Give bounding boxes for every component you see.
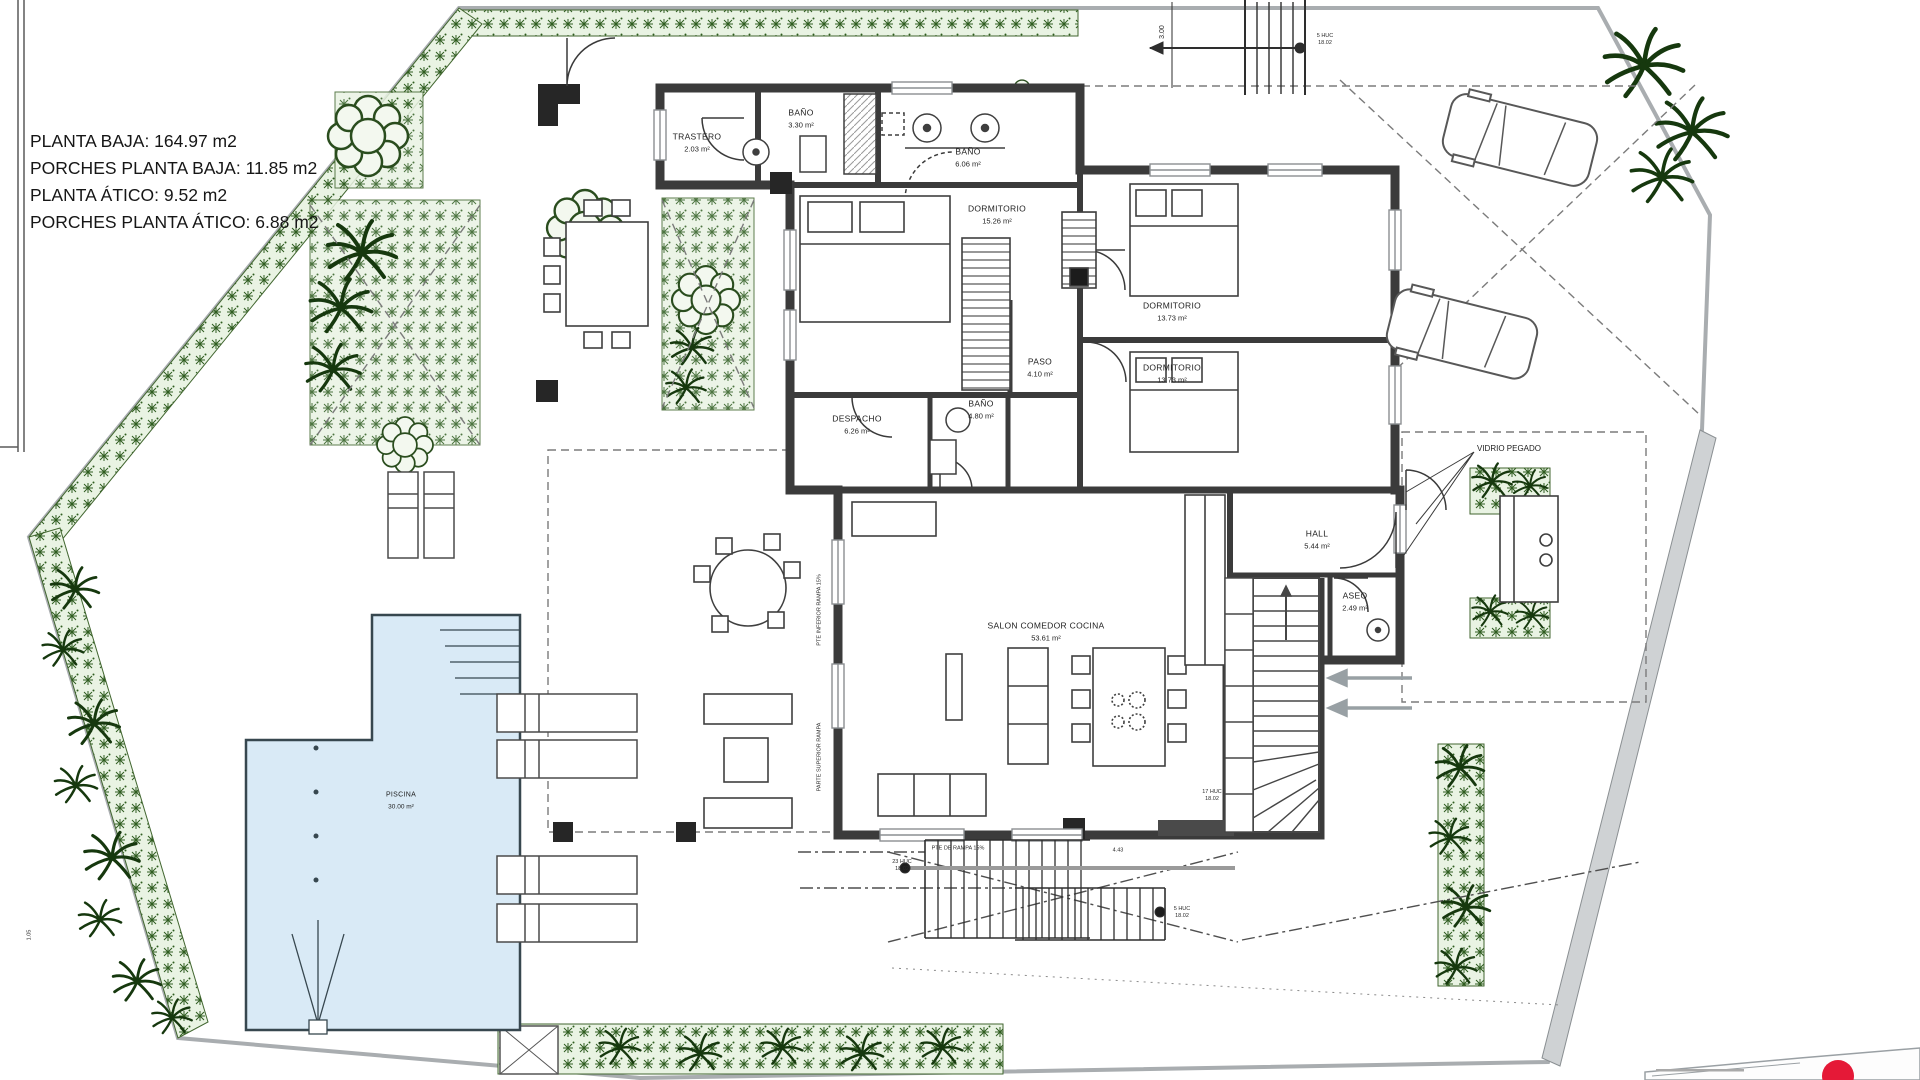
room-label-bano-top: BAÑO3.30 m² (788, 105, 813, 132)
room-label-bano-suite: BAÑO6.06 m² (955, 144, 980, 171)
room-label-bano-pasillo: BAÑO4.80 m² (968, 396, 993, 423)
ramp-note: PTE DE RAMPA 15% (932, 845, 985, 852)
room-label-dormitorio-3: DORMITORIO13.73 m² (1143, 360, 1201, 387)
room-label-piscina: PISCINA30.00 m² (386, 790, 416, 813)
dim-left: 1.05 (26, 930, 33, 941)
stair-bottom-note: 23 HUC18.02 (892, 859, 912, 873)
room-label-dormitorio-principal: DORMITORIO15.26 m² (968, 201, 1026, 228)
dim-vertical: 3.00 (1157, 25, 1169, 39)
sheet-edge (0, 0, 24, 452)
dim-bottom: 4.43 (1113, 847, 1124, 854)
room-label-paso: PASO4.10 m² (1027, 354, 1052, 381)
summary-line: PORCHES PLANTA ÁTICO: 6.88 m2 (30, 209, 319, 236)
room-label-trastero: TRASTERO2.03 m² (673, 129, 722, 156)
title-block (1645, 1048, 1920, 1080)
right-terrace (1500, 496, 1558, 602)
area-summary: PLANTA BAJA: 164.97 m2 PORCHES PLANTA BA… (30, 128, 319, 236)
vidrio-pegado-label: VIDRIO PEGADO (1477, 444, 1541, 453)
summary-line: PLANTA BAJA: 164.97 m2 (30, 128, 319, 155)
stair-int-note: 17 HUC18.02 (1202, 789, 1222, 803)
stair-top-note: 5 HUC18.02 (1317, 33, 1334, 47)
summary-line: PORCHES PLANTA BAJA: 11.85 m2 (30, 155, 319, 182)
room-label-aseo: ASEO2.49 m² (1342, 588, 1367, 615)
interior-staircase (1225, 578, 1319, 832)
stair-bottom2-note: 5 HUC18.02 (1174, 906, 1191, 920)
room-label-dormitorio-2: DORMITORIO13.73 m² (1143, 298, 1201, 325)
ramp-vertical-note-2: PARTE SUPERIOR RAMPA (816, 723, 823, 792)
room-label-salon: SALON COMEDOR COCINA53.61 m² (988, 618, 1105, 645)
ramp-vertical-note-1: PTE INFERIOR RAMPA 15% (816, 574, 823, 645)
room-label-despacho: DESPACHO6.26 m² (832, 411, 881, 438)
summary-line: PLANTA ÁTICO: 9.52 m2 (30, 182, 319, 209)
room-label-hall: HALL5.44 m² (1304, 526, 1329, 553)
floor-plan-sheet: PLANTA BAJA: 164.97 m2 PORCHES PLANTA BA… (0, 0, 1920, 1080)
